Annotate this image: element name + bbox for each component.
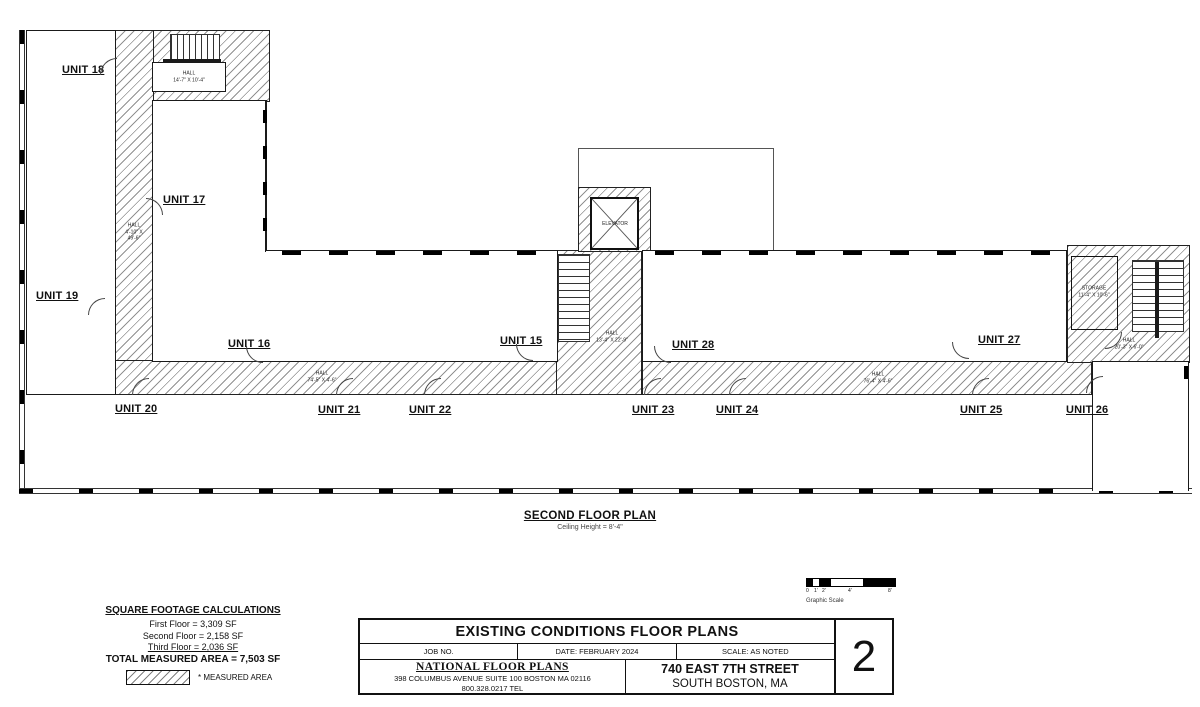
title-block-info-row: JOB NO. DATE: FEBRUARY 2024 SCALE: AS NO…: [360, 644, 834, 660]
unit-label-26: UNIT 26: [1066, 404, 1108, 416]
unit-label-22: UNIT 22: [409, 404, 451, 416]
storage-label: STORAGE 11'-4" X 10'-6": [1078, 286, 1109, 299]
scale-segment: [863, 579, 895, 586]
drawing-title: EXISTING CONDITIONS FLOOR PLANS: [360, 620, 834, 644]
hall-label-bottom-left: HALL 74'-5" X 4'-6": [308, 371, 337, 384]
stair-top: [170, 34, 220, 61]
scale-bar: [806, 578, 896, 587]
firm-phone: 800.328.0217 TEL: [462, 684, 524, 693]
legend-line: Second Floor = 2,158 SF: [88, 631, 298, 641]
hall-label-left: HALL 4'-10" X 49'-6": [119, 222, 149, 242]
hall-dims: 74'-5" X 4'-6": [308, 377, 337, 384]
window-marks-unit26-wall: [1184, 366, 1188, 388]
measured-area-note: * MEASURED AREA: [198, 673, 272, 682]
window-marks-left-wing: [282, 251, 544, 255]
elevator-label: ELEVATOR: [602, 221, 628, 228]
scale-tick: 8': [888, 588, 892, 594]
scale-segment: [819, 579, 831, 586]
legend-line: Third Floor = 2,036 SF: [88, 642, 298, 652]
hall-dims: 13'-4" X 22'-9": [596, 337, 628, 344]
title-block-main: EXISTING CONDITIONS FLOOR PLANS JOB NO. …: [360, 620, 834, 693]
unit-label-28: UNIT 28: [672, 339, 714, 351]
unit-label-27: UNIT 27: [978, 334, 1020, 346]
unit-17-room: [152, 100, 267, 362]
plan-title: SECOND FLOOR PLAN: [490, 510, 690, 522]
legend-line: First Floor = 3,309 SF: [88, 619, 298, 629]
firm-address: 398 COLUMBUS AVENUE SUITE 100 BOSTON MA …: [394, 674, 591, 683]
scale-tick: 1': [814, 588, 818, 594]
property-line-bottom: [19, 488, 1192, 494]
measured-area-key: * MEASURED AREA: [126, 670, 272, 685]
graphic-scale: 0 1' 2' 4' 8' Graphic Scale: [806, 578, 898, 604]
sheet-number: 2: [834, 620, 892, 693]
scale: SCALE: AS NOTED: [676, 644, 834, 659]
firm-cell: NATIONAL FLOOR PLANS 398 COLUMBUS AVENUE…: [360, 660, 626, 693]
scale-tick: 2': [822, 588, 826, 594]
hall-dims: 76'-4" X 4'-6": [864, 378, 893, 385]
drawing-sheet: HALL 14'-7" X 10'-4" HALL 4'-10" X 49'-6…: [0, 0, 1200, 707]
hall-label-center: HALL 13'-4" X 22'-9": [596, 331, 628, 344]
unit-26-room: [1092, 361, 1189, 491]
hall-label-top: HALL 14'-7" X 10'-4": [173, 71, 205, 84]
hall-dims: 14'-7" X 10'-4": [173, 77, 205, 84]
stair-top-landing-rail: [163, 59, 221, 63]
firm-name: NATIONAL FLOOR PLANS: [416, 660, 569, 674]
square-footage-legend: SQUARE FOOTAGE CALCULATIONS First Floor …: [88, 605, 298, 665]
window-marks-right-wing: [655, 251, 1055, 255]
site-cell: 740 EAST 7TH STREET SOUTH BOSTON, MA: [626, 660, 834, 693]
room-dims: 11'-4" X 10'-6": [1078, 292, 1109, 299]
window-marks-unit17-wall: [263, 110, 267, 240]
property-line-left: [19, 30, 25, 492]
stair-right-rail: [1155, 262, 1159, 338]
scale-ticks: 0 1' 2' 4' 8': [806, 587, 898, 595]
legend-total: TOTAL MEASURED AREA = 7,503 SF: [88, 654, 298, 665]
hall-label-bottom-right: HALL 76'-4" X 4'-6": [864, 372, 893, 385]
unit-label-21: UNIT 21: [318, 404, 360, 416]
hall-dims: 20'-3" X 6'-0": [1115, 344, 1144, 351]
unit-label-17: UNIT 17: [163, 194, 205, 206]
plan-subtitle: Ceiling Height = 8'-4": [490, 524, 690, 531]
job-no: JOB NO.: [360, 644, 517, 659]
title-block: EXISTING CONDITIONS FLOOR PLANS JOB NO. …: [358, 618, 894, 695]
site-address-line1: 740 EAST 7TH STREET: [661, 661, 799, 677]
room-name: STORAGE: [1078, 286, 1109, 293]
unit-label-25: UNIT 25: [960, 404, 1002, 416]
unit-label-20: UNIT 20: [115, 403, 157, 415]
scale-tick: 4': [848, 588, 852, 594]
hall-dims: 4'-10" X 49'-6": [119, 229, 149, 242]
hatch-swatch: [126, 670, 190, 685]
unit-label-24: UNIT 24: [716, 404, 758, 416]
stair-center: [558, 254, 590, 342]
scale-tick: 0: [806, 588, 809, 594]
date: DATE: FEBRUARY 2024: [517, 644, 675, 659]
unit-label-19: UNIT 19: [36, 290, 78, 302]
site-address-line2: SOUTH BOSTON, MA: [672, 677, 787, 692]
legend-heading: SQUARE FOOTAGE CALCULATIONS: [88, 605, 298, 616]
scale-segment: [831, 579, 863, 586]
title-block-bottom-row: NATIONAL FLOOR PLANS 398 COLUMBUS AVENUE…: [360, 660, 834, 693]
scale-caption: Graphic Scale: [806, 598, 898, 604]
unit-label-18: UNIT 18: [62, 64, 104, 76]
unit-label-23: UNIT 23: [632, 404, 674, 416]
unit-18-19-room: [26, 30, 116, 395]
